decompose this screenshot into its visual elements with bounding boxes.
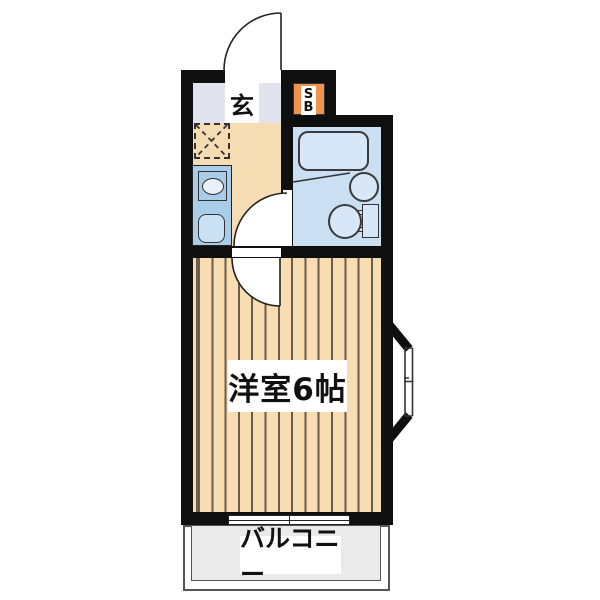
- wash-basin: [349, 172, 379, 202]
- bathtub: [298, 131, 369, 171]
- bay-window-glass: [405, 348, 413, 416]
- stove-burner-icon: [202, 178, 224, 195]
- entrance-door-arc: [224, 13, 281, 70]
- wall-bathroom-top: [281, 115, 393, 127]
- balcony-label: バルコニー: [240, 536, 341, 574]
- entrance-label: 玄: [225, 89, 259, 117]
- main-room-label: 洋室6帖: [228, 360, 347, 412]
- wall-left: [181, 70, 193, 525]
- balcony-sliding-door-divider: [289, 515, 291, 525]
- wall-top-left-segment: [181, 70, 225, 83]
- wall-kitchen-mainroom: [181, 246, 393, 258]
- mainroom-doorway: [232, 248, 281, 257]
- wall-shoebox-right: [325, 70, 336, 115]
- wall-right: [381, 115, 393, 525]
- floor-plan: S B バルコニー 玄 洋: [0, 0, 600, 600]
- toilet-bowl: [328, 204, 362, 239]
- toilet-tank: [362, 204, 379, 238]
- bathroom-doorway: [283, 190, 292, 246]
- entrance-doorway: [225, 70, 281, 83]
- shoe-box-label-s: S: [304, 88, 313, 101]
- kitchen-sink: [198, 214, 225, 243]
- shoe-box-label-b: B: [304, 101, 314, 114]
- bay-window-sash-tick: [404, 378, 414, 382]
- refrigerator-space: [194, 123, 230, 159]
- stove: [198, 171, 227, 201]
- shoe-box-label: S B: [301, 86, 316, 115]
